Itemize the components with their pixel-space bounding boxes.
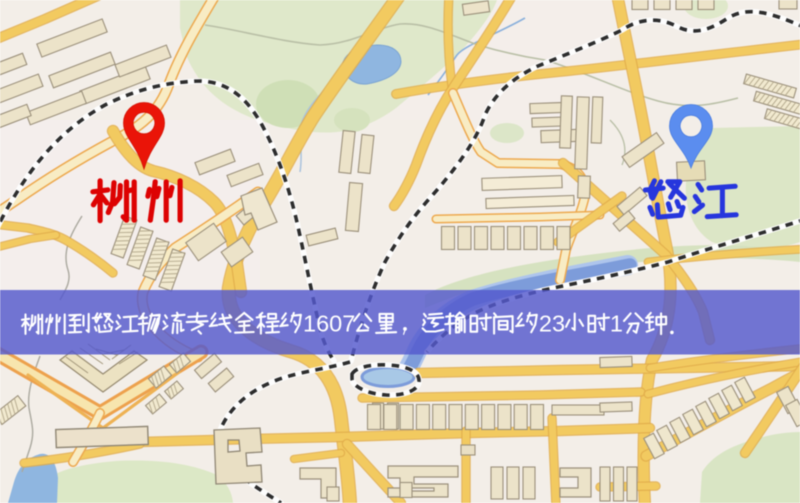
svg-text:1607: 1607 xyxy=(303,310,355,336)
svg-text:23: 23 xyxy=(539,310,565,336)
svg-text:1: 1 xyxy=(610,310,623,336)
